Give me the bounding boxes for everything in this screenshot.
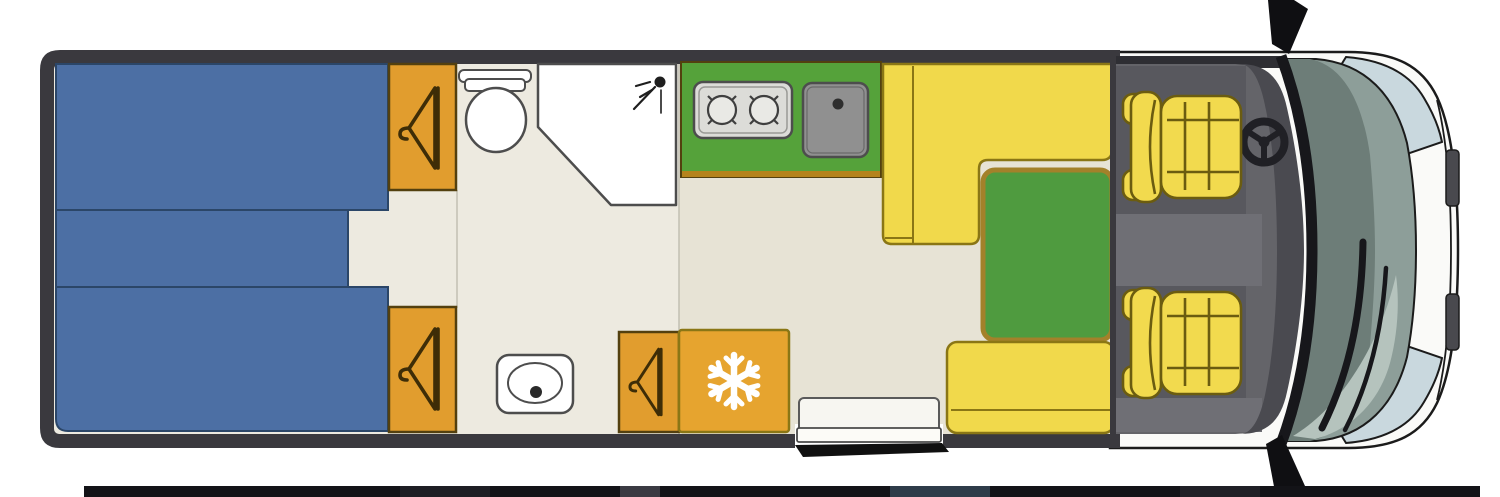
twin-beds [56, 64, 388, 431]
fridge-cabinet [679, 330, 789, 432]
bed-mattress [56, 64, 388, 431]
kitchen-sink [803, 83, 868, 157]
driver-cab [1110, 54, 1304, 434]
small-wardrobe-cabinet [619, 332, 679, 432]
dinette-table [983, 170, 1112, 340]
cab-walkway [1116, 214, 1262, 286]
passenger-seat [1123, 288, 1241, 398]
cab-end-wall [1110, 54, 1116, 434]
driver-seat [1123, 92, 1241, 202]
faucet-dot [833, 99, 844, 110]
front-accent-bottom [1446, 294, 1459, 350]
outer-step [797, 428, 941, 442]
stove [694, 82, 792, 138]
kitchen-counter [681, 62, 881, 177]
washbasin [497, 355, 573, 413]
motorhome-floorplan-page [0, 0, 1500, 497]
entry-door [795, 398, 949, 457]
lower-plan-cropped-edge [84, 486, 1480, 497]
cab-lower-band [1116, 398, 1262, 432]
motorhome-floorplan [0, 0, 1500, 497]
wardrobe-top [389, 64, 456, 190]
side-bench [947, 342, 1114, 433]
door-landing [799, 398, 939, 432]
wardrobe-bottom [389, 307, 456, 432]
front-accent-top [1446, 150, 1459, 206]
drain-dot [530, 386, 542, 398]
